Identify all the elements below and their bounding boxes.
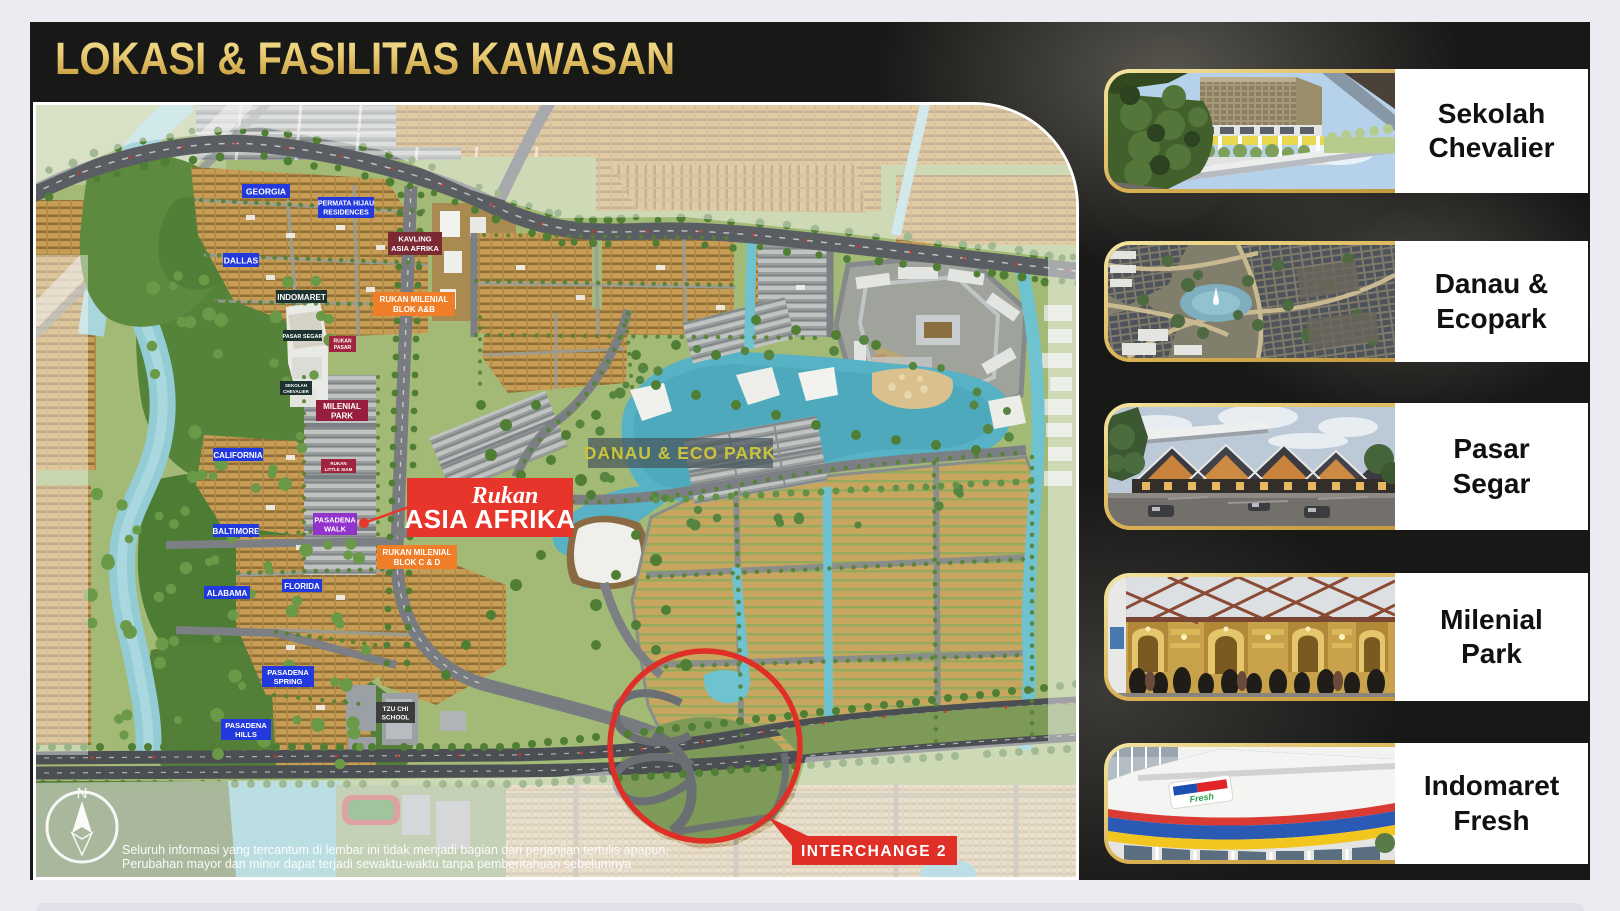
- svg-text:ASIA AFRIKA: ASIA AFRIKA: [391, 244, 439, 253]
- svg-text:N: N: [77, 785, 88, 802]
- svg-text:RUKAN: RUKAN: [333, 339, 351, 345]
- svg-text:INTERCHANGE 2: INTERCHANGE 2: [801, 843, 947, 860]
- svg-text:TZU CHI: TZU CHI: [383, 706, 409, 713]
- svg-text:LITTLE SIAM: LITTLE SIAM: [325, 467, 353, 472]
- svg-text:PERMATA HIJAU: PERMATA HIJAU: [318, 201, 374, 208]
- svg-text:CALIFORNIA: CALIFORNIA: [213, 451, 263, 460]
- svg-text:DALLAS: DALLAS: [224, 256, 259, 266]
- svg-text:WALK: WALK: [324, 525, 347, 534]
- svg-text:ALABAMA: ALABAMA: [207, 589, 248, 598]
- svg-text:MILENIAL: MILENIAL: [323, 402, 361, 411]
- svg-text:KAVLING: KAVLING: [398, 235, 431, 244]
- svg-text:DANAU & ECO PARK: DANAU & ECO PARK: [584, 443, 777, 463]
- svg-text:RUKAN MILENIAL: RUKAN MILENIAL: [380, 295, 449, 304]
- svg-text:SEKOLAH: SEKOLAH: [285, 383, 307, 388]
- svg-text:BLOK C & D: BLOK C & D: [394, 558, 441, 567]
- svg-text:FLORIDA: FLORIDA: [284, 582, 320, 591]
- svg-text:CHEVALIER: CHEVALIER: [283, 389, 309, 394]
- svg-text:GEORGIA: GEORGIA: [246, 187, 286, 197]
- svg-text:PASAR SEGAR: PASAR SEGAR: [283, 334, 323, 340]
- svg-text:SPRING: SPRING: [274, 677, 303, 686]
- svg-text:PASAR: PASAR: [334, 345, 352, 351]
- svg-text:PARK: PARK: [331, 412, 353, 421]
- svg-text:RUKAN: RUKAN: [330, 461, 346, 466]
- svg-text:Seluruh informasi yang tercant: Seluruh informasi yang tercantum di lemb…: [122, 843, 669, 857]
- svg-text:RUKAN MILENIAL: RUKAN MILENIAL: [383, 548, 452, 557]
- svg-text:ASIA AFRIKA: ASIA AFRIKA: [404, 504, 575, 534]
- svg-text:BALTIMORE: BALTIMORE: [213, 527, 261, 536]
- svg-text:HILLS: HILLS: [235, 730, 257, 739]
- svg-text:SCHOOL: SCHOOL: [382, 715, 410, 722]
- svg-text:PASADENA: PASADENA: [314, 516, 356, 525]
- svg-text:RESIDENCES: RESIDENCES: [323, 210, 369, 217]
- svg-text:BLOK A&B: BLOK A&B: [393, 305, 435, 314]
- svg-text:PASADENA: PASADENA: [225, 721, 267, 730]
- svg-text:PASADENA: PASADENA: [267, 668, 309, 677]
- svg-text:Perubahan mayor dan minor dapa: Perubahan mayor dan minor dapat terjadi …: [122, 857, 631, 871]
- svg-text:INDOMARET: INDOMARET: [277, 293, 326, 302]
